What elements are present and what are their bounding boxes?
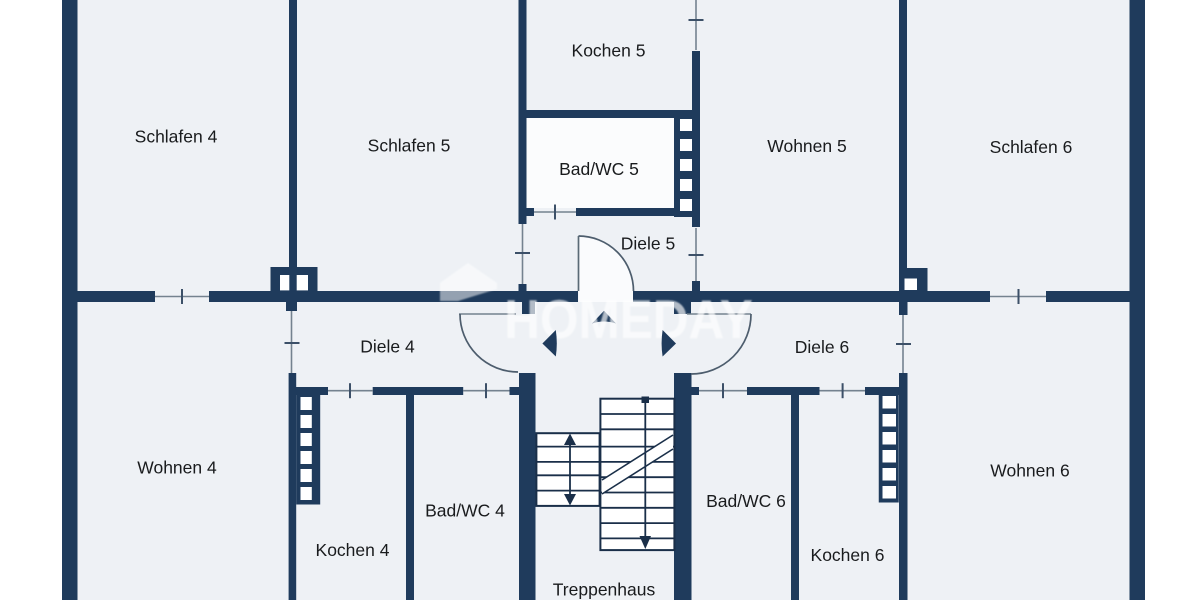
svg-text:Bad/WC 6: Bad/WC 6: [706, 491, 786, 511]
svg-text:Wohnen 6: Wohnen 6: [990, 461, 1069, 481]
svg-text:Kochen 5: Kochen 5: [572, 41, 646, 61]
svg-text:HOMEDAY: HOMEDAY: [504, 290, 753, 351]
svg-text:Schlafen 5: Schlafen 5: [368, 136, 451, 156]
svg-text:Schlafen 6: Schlafen 6: [990, 137, 1073, 157]
svg-text:Treppenhaus: Treppenhaus: [553, 580, 656, 600]
svg-text:Bad/WC 4: Bad/WC 4: [425, 501, 505, 521]
svg-text:Diele 4: Diele 4: [360, 337, 415, 357]
svg-text:Kochen 6: Kochen 6: [811, 545, 885, 565]
svg-text:Wohnen 5: Wohnen 5: [767, 136, 846, 156]
svg-text:Schlafen 4: Schlafen 4: [135, 127, 218, 147]
svg-text:Wohnen 4: Wohnen 4: [137, 458, 217, 478]
svg-text:Bad/WC 5: Bad/WC 5: [559, 159, 639, 179]
svg-text:Diele 6: Diele 6: [795, 337, 849, 357]
svg-text:Kochen 4: Kochen 4: [316, 540, 390, 560]
svg-text:Diele 5: Diele 5: [621, 234, 675, 254]
